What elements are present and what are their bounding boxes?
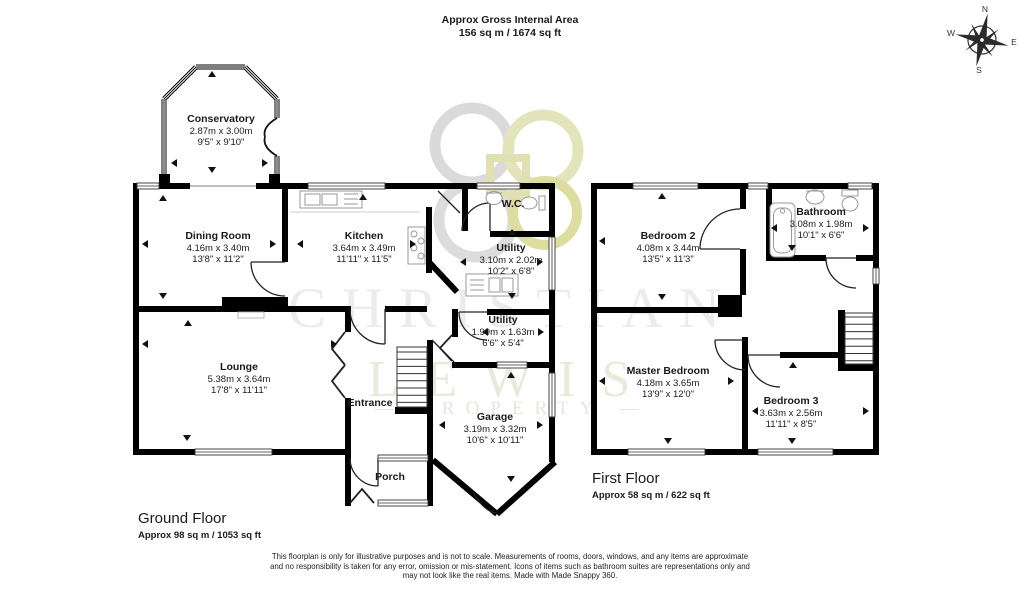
room-label-bathroom: Bathroom 3.08m x 1.98m 10'1" x 6'6" [790,207,853,242]
measurement-arrow [262,159,268,167]
gross-internal-area-header: Approx Gross Internal Area 156 sq m / 16… [442,14,579,40]
compass-n-label: N [982,4,988,14]
measurement-arrow [171,159,177,167]
room-name: Bedroom 3 [760,396,823,408]
measurement-arrow [599,377,605,385]
room-imperial: 11'11" x 11'5" [333,254,396,266]
room-name: Utility [480,243,543,255]
measurement-arrow [184,320,192,326]
room-label-utility-1: Utility 3.10m x 2.02m 10'2" x 6'8" [480,243,543,278]
compass-rose: N E S W [943,2,1020,80]
measurement-arrow [507,476,515,482]
measurement-arrow [142,340,148,348]
compass-w-label: W [947,28,955,38]
room-name: Bathroom [790,207,853,219]
room-imperial: 13'5" x 11'3" [637,254,700,266]
measurement-arrow [752,407,758,415]
measurement-arrow [507,372,515,378]
disclaimer-line2: and no responsibility is taken for any e… [270,562,750,572]
room-label-lounge: Lounge 5.38m x 3.64m 17'8" x 11'11" [208,362,271,397]
room-label-porch: Porch [375,472,405,484]
room-name: Lounge [208,362,271,374]
measurement-arrow [788,438,796,444]
measurement-arrow [159,195,167,201]
measurement-arrow [538,328,544,336]
measurement-arrow [863,224,869,232]
window-wall-mullion [164,67,196,99]
room-label-kitchen: Kitchen 3.64m x 3.49m 11'11" x 11'5" [333,231,396,266]
disclaimer-line3: may not look like the real items. Made w… [270,571,750,581]
room-name: W.C. [502,199,525,211]
room-metric: 4.08m x 3.44m [637,243,700,255]
room-name: Kitchen [333,231,396,243]
header-line2: 156 sq m / 1674 sq ft [442,27,579,40]
fireplace-icon [238,312,264,318]
kitchen-sink-icon [300,191,362,208]
measurement-arrow [297,240,303,248]
room-label-master-bedroom: Master Bedroom 4.18m x 3.65m 13'9" x 12'… [627,366,710,401]
room-name: Entrance [348,398,393,410]
floor-name: First Floor [592,470,710,487]
compass-s-label: S [976,65,982,75]
ground-floor-title: Ground Floor Approx 98 sq m / 1053 sq ft [138,510,261,541]
room-imperial: 11'11" x 8'5" [760,419,823,431]
measurement-arrow [183,435,191,441]
conservatory-post-right [269,174,280,183]
hall-diagonal-wall [429,262,457,292]
conservatory-door [265,118,278,156]
measurement-arrow [460,258,466,266]
room-metric: 3.63m x 2.56m [760,408,823,420]
garage-bottom-wall-left [433,460,497,514]
measurement-arrow [537,421,543,429]
room-name: Conservatory [187,114,255,126]
disclaimer-line1: This floorplan is only for illustrative … [270,552,750,562]
compass-star [950,8,1014,72]
room-metric: 1.99m x 1.63m [472,327,535,339]
room-name: Porch [375,472,405,484]
bathroom-sink-icon [806,190,824,204]
room-metric: 3.64m x 3.49m [333,243,396,255]
floorplan-graphics [0,0,1020,589]
measurement-arrow [658,294,666,300]
room-label-conservatory: Conservatory 2.87m x 3.00m 9'5" x 9'10" [187,114,255,149]
room-imperial: 10'1" x 6'6" [790,230,853,242]
room-metric: 4.16m x 3.40m [185,243,250,255]
room-imperial: 13'8" x 11'2" [185,254,250,266]
room-label-wc: W.C. [502,199,525,211]
first-floor-stairs [845,313,873,364]
disclaimer-text: This floorplan is only for illustrative … [270,552,750,581]
room-metric: 3.19m x 3.32m [464,424,527,436]
room-label-entrance: Entrance [348,398,393,410]
room-label-utility-2: Utility 1.99m x 1.63m 6'6" x 5'4" [472,315,535,350]
measurement-arrow [599,237,605,245]
measurement-arrow [208,167,216,173]
room-name: Dining Room [185,231,250,243]
floor-area: Approx 58 sq m / 622 sq ft [592,490,710,501]
measurement-arrow [728,377,734,385]
room-imperial: 9'5" x 9'10" [187,137,255,149]
measurement-arrow [789,362,797,368]
measurement-arrow [208,71,216,77]
first-floor-title: First Floor Approx 58 sq m / 622 sq ft [592,470,710,501]
room-metric: 3.08m x 1.98m [790,219,853,231]
measurement-arrow [658,193,666,199]
room-imperial: 6'6" x 5'4" [472,338,535,350]
garage-bottom-wall-right [497,462,555,514]
room-metric: 4.18m x 3.65m [627,378,710,390]
floor-name: Ground Floor [138,510,261,527]
room-metric: 2.87m x 3.00m [187,126,255,138]
compass-e-label: E [1011,37,1017,47]
room-label-bedroom-3: Bedroom 3 3.63m x 2.56m 11'11" x 8'5" [760,396,823,431]
header-line1: Approx Gross Internal Area [442,14,579,27]
measurement-arrow [142,240,148,248]
floorplan-page: Approx Gross Internal Area 156 sq m / 16… [0,0,1020,589]
room-label-garage: Garage 3.19m x 3.32m 10'6" x 10'11" [464,412,527,447]
floor-area: Approx 98 sq m / 1053 sq ft [138,530,261,541]
conservatory-post-left [159,174,170,183]
room-imperial: 17'8" x 11'11" [208,385,271,397]
measurement-arrow [159,293,167,299]
room-label-bedroom-2: Bedroom 2 4.08m x 3.44m 13'5" x 11'3" [637,231,700,266]
measurement-arrow [270,240,276,248]
room-imperial: 13'9" x 12'0" [627,389,710,401]
wc-sink-icon [486,192,502,205]
room-metric: 5.38m x 3.64m [208,374,271,386]
room-name: Utility [472,315,535,327]
room-imperial: 10'2" x 6'8" [480,266,543,278]
room-metric: 3.10m x 2.02m [480,255,543,267]
room-name: Garage [464,412,527,424]
ground-stairs [397,347,427,407]
measurement-arrow [863,407,869,415]
measurement-arrow [439,421,445,429]
room-label-dining-room: Dining Room 4.16m x 3.40m 13'8" x 11'2" [185,231,250,266]
room-imperial: 10'6" x 10'11" [464,435,527,447]
room-name: Bedroom 2 [637,231,700,243]
measurement-arrow [664,438,672,444]
room-name: Master Bedroom [627,366,710,378]
window-wall-mullion [245,67,277,99]
